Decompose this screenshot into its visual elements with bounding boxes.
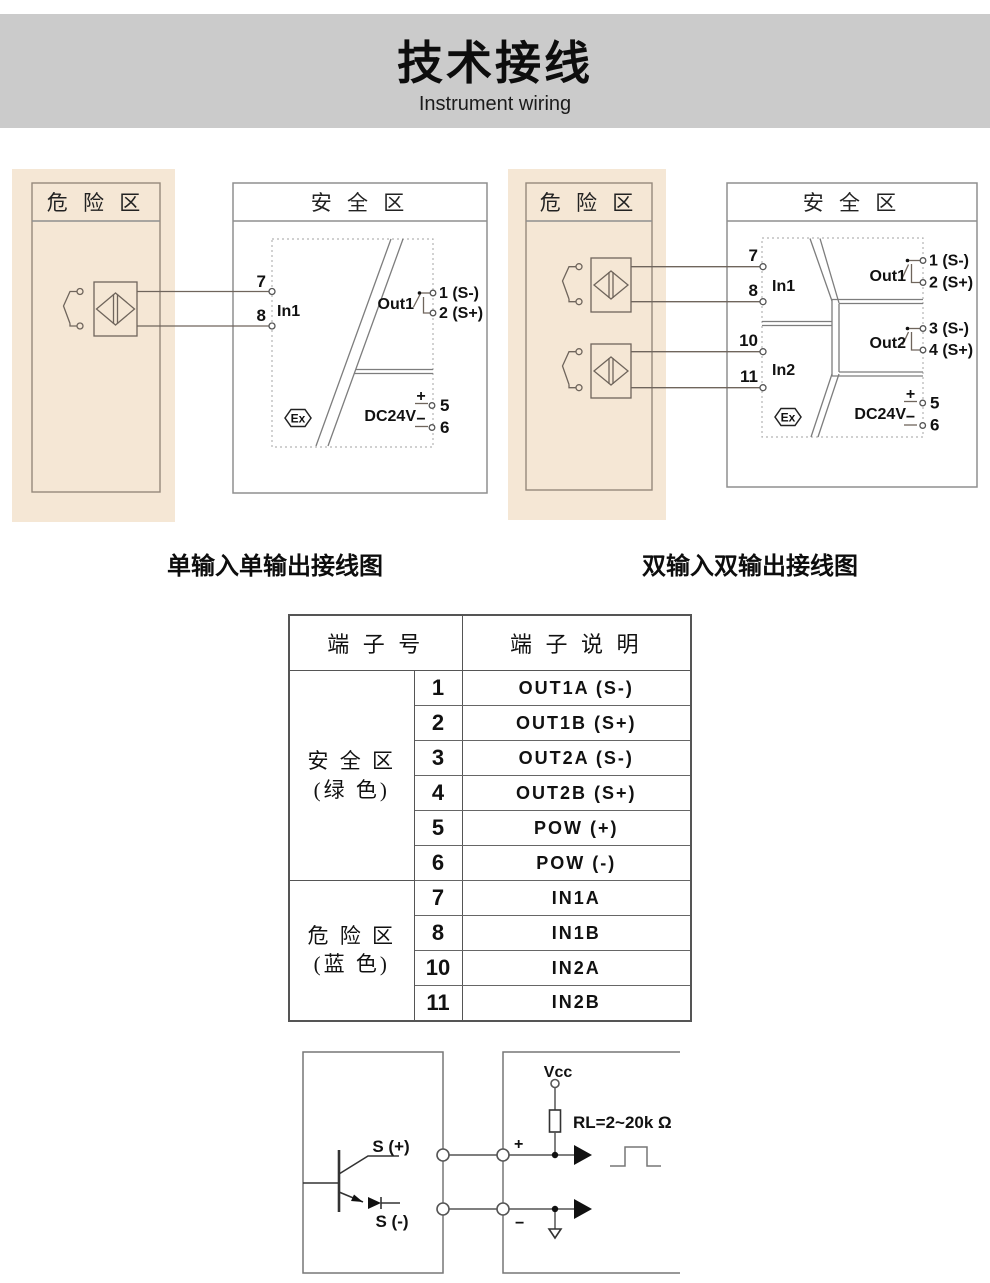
terminal-no: 2 <box>414 706 462 741</box>
label-3-s-minus: 3 (S-) <box>929 321 969 338</box>
terminal-no: 10 <box>414 951 462 986</box>
label-6: 6 <box>930 416 939 435</box>
label-in1: In1 <box>277 303 300 320</box>
table-row: 安 全 区 (绿 色) 1 OUT1A (S-) <box>289 671 691 706</box>
header-band: 技术接线 Instrument wiring <box>0 14 990 128</box>
terminal-5 <box>920 400 926 406</box>
page: 技术接线 Instrument wiring 危 险 区 安 全 区 <box>0 0 990 1283</box>
terminal-desc: IN2A <box>462 951 691 986</box>
signal-arrow-icon <box>574 1199 592 1219</box>
single-diagram: 危 险 区 安 全 区 <box>12 169 487 522</box>
dual-diagram: 危 险 区 安 全 区 <box>508 169 977 520</box>
label-s-minus: S (-) <box>375 1212 408 1231</box>
terminal-desc: IN2B <box>462 986 691 1021</box>
terminal-2 <box>430 310 436 316</box>
vcc-terminal <box>551 1080 559 1088</box>
terminal-no: 5 <box>414 811 462 846</box>
terminal-no: 3 <box>414 741 462 776</box>
zone-hazard-label: 危 险 区 <box>290 922 414 950</box>
label-in2: In2 <box>772 362 795 379</box>
label-1-s-minus: 1 (S-) <box>439 285 479 302</box>
label-10: 10 <box>739 331 758 350</box>
terminal-8 <box>760 299 766 305</box>
label-s-plus: S (+) <box>372 1137 409 1156</box>
label-plus: + <box>416 388 425 405</box>
terminal-8 <box>269 323 275 329</box>
terminal-desc: POW (-) <box>462 846 691 881</box>
col-header-terminal-desc: 端 子 说 明 <box>462 615 691 671</box>
terminal-circle <box>497 1203 509 1215</box>
device-side-box <box>303 1052 443 1273</box>
svg-text:Ex: Ex <box>781 411 796 425</box>
label-6: 6 <box>440 418 449 437</box>
label-minus: − <box>515 1215 524 1232</box>
label-2-s-plus: 2 (S+) <box>439 305 483 322</box>
terminal-7 <box>269 289 275 295</box>
hazard-title: 危 险 区 <box>47 191 146 215</box>
terminal-no: 1 <box>414 671 462 706</box>
load-side-box <box>503 1052 680 1273</box>
zone-hazard-color: (蓝 色) <box>290 950 414 978</box>
terminal-6 <box>429 425 435 431</box>
junction-dot <box>552 1206 558 1212</box>
terminal-1 <box>430 290 436 296</box>
label-7: 7 <box>749 246 758 265</box>
terminal-5 <box>429 403 435 409</box>
terminal-desc: OUT2B (S+) <box>462 776 691 811</box>
terminal-circle <box>437 1203 449 1215</box>
label-plus: + <box>906 386 915 403</box>
safe-title: 安 全 区 <box>803 191 902 215</box>
terminal-table: 端 子 号 端 子 说 明 安 全 区 (绿 色) 1 OUT1A (S-) 2… <box>288 614 692 1022</box>
zone-safe-cell: 安 全 区 (绿 色) <box>289 671 414 881</box>
terminal-no: 6 <box>414 846 462 881</box>
label-in1: In1 <box>772 278 795 295</box>
terminal-4 <box>920 347 926 353</box>
zone-safe-label: 安 全 区 <box>290 747 414 775</box>
junction-dot <box>552 1152 558 1158</box>
terminal-circle <box>437 1149 449 1161</box>
terminal-no: 11 <box>414 986 462 1021</box>
terminal-10 <box>760 349 766 355</box>
terminal-desc: OUT1B (S+) <box>462 706 691 741</box>
pulse-waveform-icon <box>610 1147 661 1166</box>
label-7: 7 <box>257 272 266 291</box>
dual-diagram-caption: 双输入双输出接线图 <box>642 546 858 581</box>
label-dc24v: DC24V <box>854 406 906 423</box>
terminal-3 <box>920 326 926 332</box>
output-circuit: S (+) S (-) Vcc RL=2~20k Ω + − <box>290 1040 700 1283</box>
terminal-6 <box>920 423 926 429</box>
wiring-diagrams: 危 险 区 安 全 区 <box>0 160 990 530</box>
label-5: 5 <box>930 394 939 413</box>
single-diagram-caption: 单输入单输出接线图 <box>167 546 383 581</box>
label-5: 5 <box>440 396 449 415</box>
label-plus: + <box>514 1136 523 1153</box>
terminal-circle <box>497 1149 509 1161</box>
label-out2: Out2 <box>870 335 907 352</box>
label-rl: RL=2~20k Ω <box>573 1113 672 1132</box>
terminal-no: 4 <box>414 776 462 811</box>
transistor-icon <box>303 1150 400 1212</box>
hazard-title: 危 险 区 <box>540 191 639 215</box>
page-title: 技术接线 <box>0 14 990 93</box>
terminal-desc: OUT1A (S-) <box>462 671 691 706</box>
resistor-icon <box>550 1110 561 1132</box>
hazard-zone-bg <box>12 169 175 522</box>
terminal-no: 7 <box>414 881 462 916</box>
terminal-desc: IN1B <box>462 916 691 951</box>
terminal-2 <box>920 280 926 286</box>
diode-icon <box>368 1197 381 1209</box>
label-minus: − <box>416 411 425 428</box>
safe-title: 安 全 区 <box>311 191 410 215</box>
terminal-no: 8 <box>414 916 462 951</box>
terminal-desc: IN1A <box>462 881 691 916</box>
terminal-7 <box>760 264 766 270</box>
label-4-s-plus: 4 (S+) <box>929 342 973 359</box>
label-out1: Out1 <box>378 296 415 313</box>
label-8: 8 <box>257 306 266 325</box>
terminal-desc: POW (+) <box>462 811 691 846</box>
col-header-terminal-no: 端 子 号 <box>289 615 462 671</box>
terminal-desc: OUT2A (S-) <box>462 741 691 776</box>
label-dc24v: DC24V <box>364 408 416 425</box>
svg-text:Ex: Ex <box>291 412 306 426</box>
zone-hazard-cell: 危 险 区 (蓝 色) <box>289 881 414 1021</box>
zone-safe-color: (绿 色) <box>290 776 414 804</box>
terminal-1 <box>920 258 926 264</box>
table-row: 危 险 区 (蓝 色) 7 IN1A <box>289 881 691 916</box>
label-vcc: Vcc <box>544 1064 573 1081</box>
signal-arrow-icon <box>574 1145 592 1165</box>
page-subtitle: Instrument wiring <box>0 93 990 116</box>
label-11: 11 <box>740 367 758 386</box>
terminal-11 <box>760 385 766 391</box>
label-minus: − <box>906 409 915 426</box>
label-2-s-plus: 2 (S+) <box>929 275 973 292</box>
label-8: 8 <box>749 281 758 300</box>
label-out1: Out1 <box>870 268 907 285</box>
label-1-s-minus: 1 (S-) <box>929 253 969 270</box>
ground-icon <box>549 1212 561 1238</box>
